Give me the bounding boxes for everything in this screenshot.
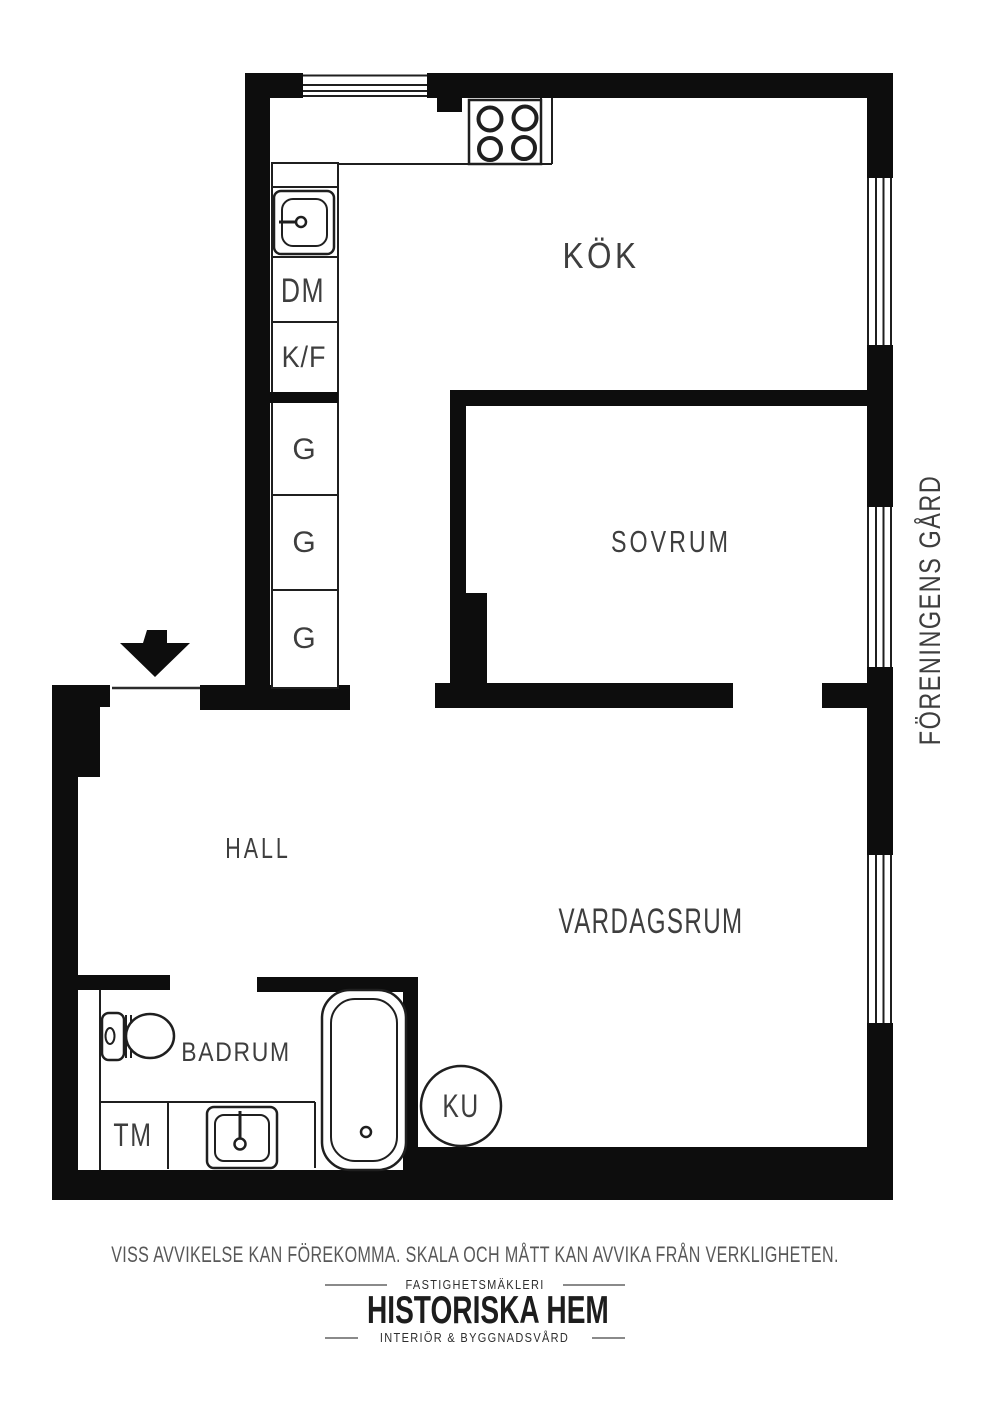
fixture-label-g3: G (292, 622, 315, 655)
wall-segment (418, 1147, 893, 1200)
wall-segment (867, 345, 893, 507)
room-label-vardagsrum: VARDAGSRUM (559, 903, 744, 941)
fixture-label-g2: G (292, 526, 315, 559)
logo-rule-left (325, 1284, 387, 1286)
kitchen-faucet-knob (296, 217, 306, 227)
floor-plan-drawing: KÖK SOVRUM HALL VARDAGSRUM BADRUM DM K/F… (0, 0, 1000, 1421)
wall-segment (78, 975, 170, 990)
room-label-sovrum: SOVRUM (611, 524, 731, 559)
wall-segment (450, 390, 867, 406)
fixture-label-ku: KU (442, 1089, 479, 1125)
fixture-label-tm: TM (113, 1118, 152, 1154)
window-kitchen-top (303, 71, 427, 100)
bathtub (322, 990, 406, 1170)
courtyard-label: FÖRENINGENS GÅRD (912, 475, 947, 746)
wall-segment (822, 683, 867, 708)
wall-segment (435, 683, 733, 708)
fixture-label-dm: DM (281, 272, 325, 310)
window-kitchen-right (864, 178, 895, 345)
wall-segment (867, 667, 893, 855)
wall-segment (52, 685, 100, 777)
fixture-label-kf: K/F (282, 341, 327, 375)
floorplan-page: KÖK SOVRUM HALL VARDAGSRUM BADRUM DM K/F… (0, 0, 1000, 1421)
room-label-badrum: BADRUM (181, 1037, 291, 1067)
wall-segment (52, 777, 78, 1200)
room-label-kok: KÖK (562, 236, 639, 276)
wall-segment (450, 593, 487, 683)
cabinet-wall-band (268, 392, 338, 403)
logo-tagline-bottom-row: INTERIÖR & BYGGNADSVÅRD (325, 1331, 625, 1345)
agency-logo: FASTIGHETSMÄKLERI HISTORISKA HEM INTERIÖ… (325, 1278, 625, 1345)
wall-segment (245, 73, 270, 710)
window-vardagsrum-right (864, 855, 895, 1023)
wall-segment (257, 977, 418, 992)
bathroom-faucet-knob (235, 1139, 246, 1150)
toilet-bowl (126, 1014, 174, 1058)
fixture-label-g1: G (292, 433, 315, 466)
window-sovrum-right (864, 507, 895, 667)
logo-rule-left (325, 1337, 358, 1339)
walls (52, 73, 893, 1200)
wall-segment (427, 73, 867, 98)
disclaimer-text: VISS AVVIKELSE KAN FÖREKOMMA. SKALA OCH … (111, 1242, 839, 1268)
logo-name: HISTORISKA HEM (367, 1293, 583, 1329)
wall-segment (867, 73, 893, 178)
logo-tagline-bottom: INTERIÖR & BYGGNADSVÅRD (380, 1331, 569, 1345)
entrance-arrow (120, 630, 190, 677)
room-label-hall: HALL (225, 833, 291, 865)
logo-rule-right (592, 1337, 625, 1339)
logo-rule-right (563, 1284, 625, 1286)
wall-segment (437, 98, 462, 112)
